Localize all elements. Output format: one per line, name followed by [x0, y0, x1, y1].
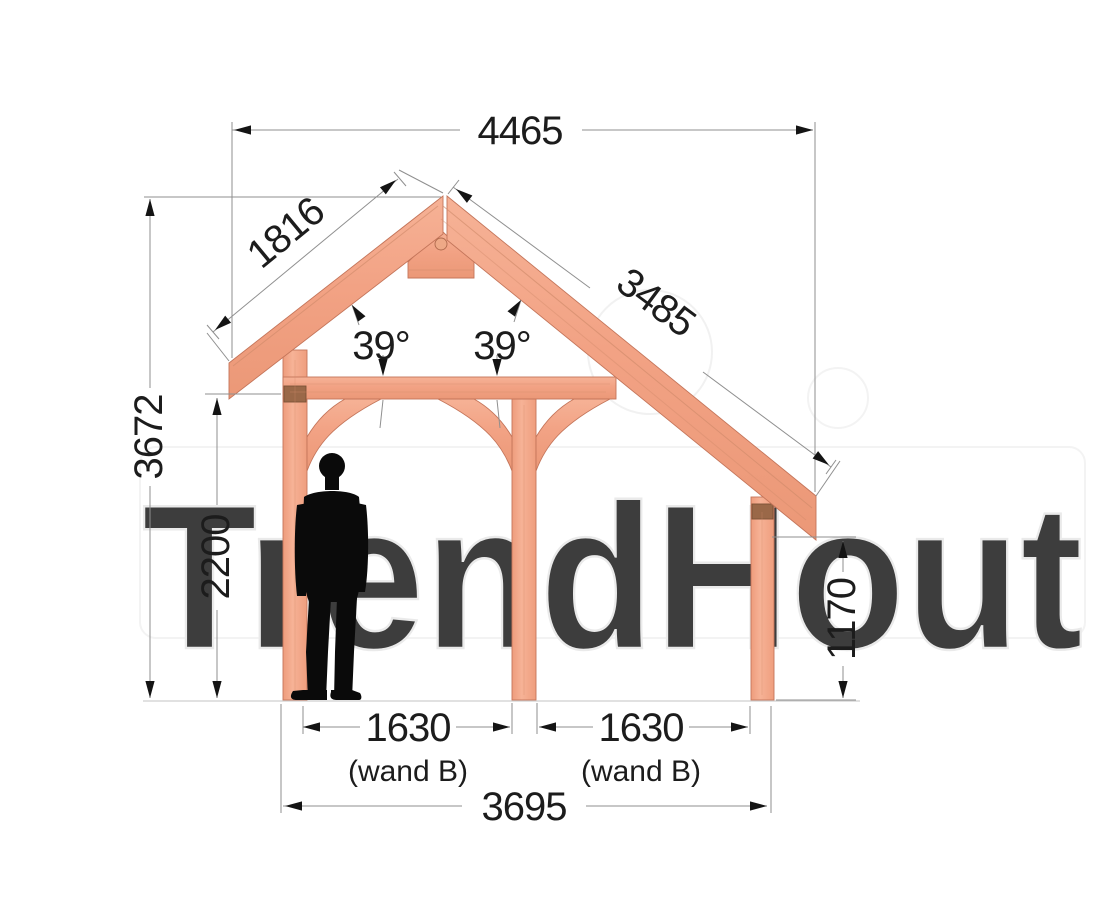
tie-beam: [283, 377, 616, 399]
knee-brace-left-post: [307, 399, 381, 471]
dim-roof-angle-left: 39°: [352, 324, 410, 368]
dim-roof-angle-right: 39°: [473, 324, 531, 368]
dim-bay-right-note: (wand B): [581, 755, 701, 788]
dim-passage-height: 2200: [194, 515, 238, 600]
knee-brace-middle-right: [536, 399, 610, 471]
watermark-crest-small-icon: [808, 368, 868, 428]
knee-brace-middle-left: [438, 399, 512, 471]
dim-left-rafter-length: 1816: [239, 189, 333, 277]
timber-frame-elevation: TrendHout: [0, 0, 1096, 913]
elevation-drawing-page: TrendHout: [0, 0, 1096, 913]
dim-bay-right: 1630: [599, 706, 684, 750]
dim-right-wall-height: 1170: [820, 578, 864, 660]
dim-post-span: 3695: [482, 785, 567, 829]
dim-overall-height: 3672: [127, 395, 171, 480]
dim-right-rafter-length: 3485: [609, 260, 703, 346]
ridge-peg-icon: [435, 238, 447, 250]
dim-bay-left-note: (wand B): [348, 755, 468, 788]
dim-bay-left: 1630: [366, 706, 451, 750]
dim-roof-total-width: 4465: [478, 109, 563, 153]
